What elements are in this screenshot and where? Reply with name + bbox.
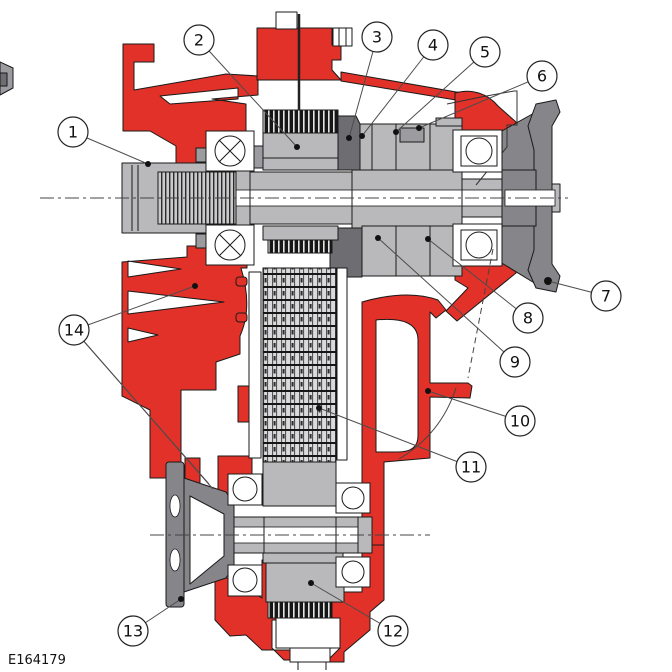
leader-dot xyxy=(393,129,399,135)
housing-left-wall xyxy=(122,246,247,478)
breather-knob xyxy=(276,12,297,29)
leader-dot xyxy=(316,405,322,411)
cap-lines xyxy=(298,662,326,670)
callout-number: 10 xyxy=(510,412,530,431)
figure-code: E164179 xyxy=(8,653,66,668)
rear-bearing-upper xyxy=(453,130,502,172)
housing-seam-band xyxy=(341,72,462,101)
drive-chain xyxy=(263,268,336,462)
callout-number: 6 xyxy=(537,67,547,86)
leader-dot xyxy=(346,135,352,141)
chain-guide-pin xyxy=(236,313,247,322)
lower-drum xyxy=(263,226,338,240)
edge-part-left-small xyxy=(0,73,7,86)
leader-dot xyxy=(308,580,314,586)
shift-collar xyxy=(338,116,360,170)
clutch-drum-top xyxy=(263,133,338,170)
leader-dot xyxy=(425,388,431,394)
chain-guide-left xyxy=(249,272,261,458)
housing-center-frame xyxy=(362,295,472,562)
bolt-head xyxy=(333,28,352,46)
leader-dot xyxy=(416,125,422,131)
flange-hole xyxy=(170,495,180,517)
chain-guide-right xyxy=(337,268,347,460)
chain-guide-pin xyxy=(236,277,247,286)
callout-7: 7 xyxy=(545,278,621,311)
callout-number: 4 xyxy=(428,36,438,55)
leader-dot xyxy=(425,236,431,242)
callout-number: 11 xyxy=(461,458,481,477)
callout-number: 2 xyxy=(194,31,204,50)
callout-number: 7 xyxy=(601,287,611,306)
callout-13: 13 xyxy=(118,596,184,646)
clutch-pack-bottom xyxy=(268,602,332,618)
leader-dot xyxy=(192,283,198,289)
callout-number: 12 xyxy=(383,622,403,641)
leader-dot xyxy=(375,235,381,241)
callout-number: 14 xyxy=(64,321,84,340)
clutch-pack-small xyxy=(268,240,332,253)
sprocket-hub-lower xyxy=(263,553,343,563)
leader-dot xyxy=(545,278,551,284)
callout-number: 13 xyxy=(123,622,143,641)
rear-bearing-lower xyxy=(453,224,502,266)
callout-number: 9 xyxy=(510,353,520,372)
clutch-drum-bottom xyxy=(266,563,344,602)
leader-dot xyxy=(178,596,184,602)
callout-number: 5 xyxy=(480,43,490,62)
diagram-page: 1234567891011121314 E164179 xyxy=(0,0,672,672)
bottom-cap-tip xyxy=(290,648,330,662)
flange-hole xyxy=(170,549,180,571)
callout-number: 8 xyxy=(523,309,533,328)
transfer-case-cross-section: 1234567891011121314 E164179 xyxy=(0,0,672,672)
callout-10: 10 xyxy=(425,388,535,436)
leader-dot xyxy=(294,144,300,150)
callout-number: 3 xyxy=(372,28,382,47)
callout-number: 1 xyxy=(68,123,78,142)
leader-dot xyxy=(145,161,151,167)
leader-dot xyxy=(359,133,365,139)
sprocket-hub xyxy=(263,462,336,506)
bottom-cap xyxy=(276,618,340,648)
